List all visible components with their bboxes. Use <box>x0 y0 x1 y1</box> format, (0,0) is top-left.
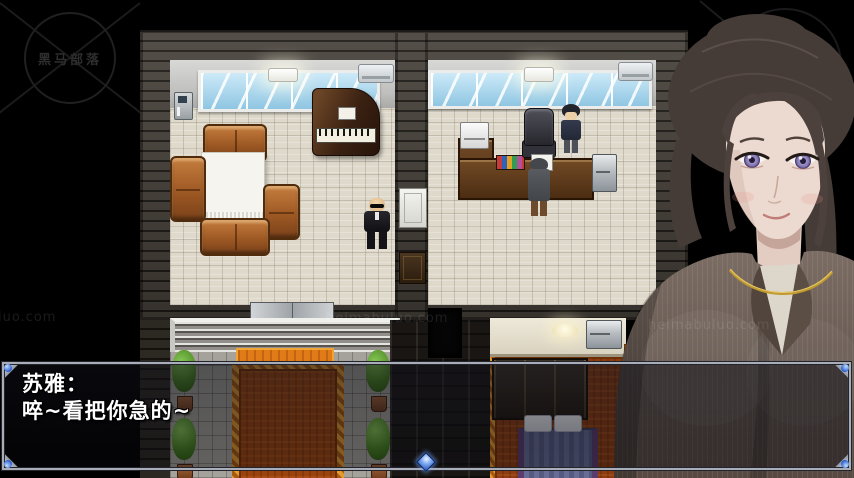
npc-leg <box>572 140 578 153</box>
npc-body <box>561 120 581 140</box>
office-desk <box>458 158 594 200</box>
npc-shirt <box>375 212 379 220</box>
npc-face <box>565 112 577 120</box>
dialogue-speaker: 苏雅： <box>22 371 88 398</box>
ceiling-light <box>524 67 554 82</box>
office-chair-back <box>524 108 554 146</box>
dialog-corner-ornament <box>5 452 20 467</box>
coffee-table <box>201 152 265 222</box>
watermark-logo: 黑马部落 <box>24 12 116 104</box>
piano-keys <box>316 128 377 143</box>
npc-coat <box>528 169 550 201</box>
npc-boot <box>540 201 547 216</box>
npc-leg <box>367 231 375 249</box>
dialog-corner-ornament <box>833 365 848 380</box>
npc-bald-suit <box>362 196 392 252</box>
sunglasses-icon <box>370 204 384 208</box>
watermark-text: heimabuluo.com <box>0 310 56 325</box>
watermark-text: heimabuluo.com <box>326 311 448 326</box>
watermark-logo-text: 黑马部落 <box>38 49 102 68</box>
wall-lamp <box>552 324 578 337</box>
desk-books <box>496 155 525 170</box>
piano-sheet-music <box>338 107 356 120</box>
grand-piano <box>312 88 380 156</box>
white-door <box>399 188 427 228</box>
npc-leg <box>564 140 570 153</box>
air-conditioner <box>358 64 394 83</box>
game-screen: 黑马部落 黑马部落 <box>0 0 854 478</box>
dialogue-text: 啐~看把你急的~ <box>22 398 191 425</box>
npc-boot <box>531 201 538 216</box>
dialog-corner-ornament <box>833 452 848 467</box>
wall-phone <box>174 92 193 120</box>
npc-leg <box>379 231 387 249</box>
sofa-bottom <box>200 218 270 256</box>
brown-door <box>399 252 426 284</box>
npc-gray-coat <box>527 158 551 218</box>
armchair-left <box>170 156 206 222</box>
printer <box>460 122 489 149</box>
watermark-text: heimabuluo.com <box>648 318 770 333</box>
ceiling-light <box>268 68 298 82</box>
dialog-corner-ornament <box>5 365 20 380</box>
npc-black-hair <box>560 104 582 154</box>
